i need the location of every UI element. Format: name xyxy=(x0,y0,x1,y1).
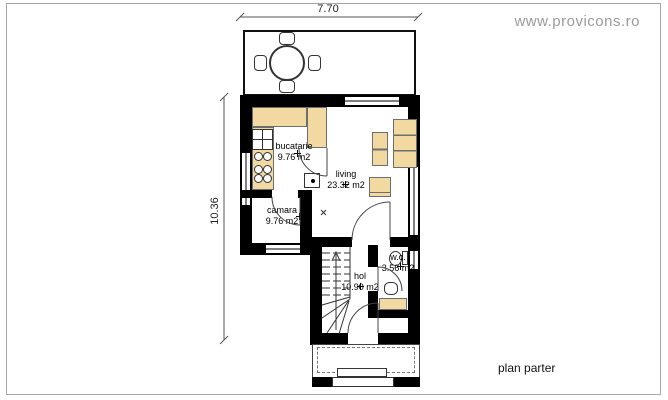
kitchen-counter-top xyxy=(252,107,307,127)
room-name-living: living xyxy=(312,169,380,180)
window-camara xyxy=(266,243,300,255)
wall-camara-bottom-left xyxy=(240,243,266,255)
center-mark-living xyxy=(342,181,349,188)
floor-plan-page: www.provicons.ro plan parter 7.70 10.36 xyxy=(0,0,668,400)
chair-left xyxy=(254,55,267,71)
room-name-camara: camara xyxy=(248,205,316,216)
porch-base-left xyxy=(312,377,332,387)
wall-wc-right-lower xyxy=(408,269,420,345)
center-mark-hol xyxy=(357,283,364,290)
watermark-text: www.provicons.ro xyxy=(514,13,640,30)
round-table xyxy=(269,45,305,81)
center-mark-camara xyxy=(296,213,303,220)
window-living-top xyxy=(345,95,399,107)
stove-burner-4 xyxy=(263,174,272,183)
wall-camara-top xyxy=(240,190,272,198)
wall-left-upper xyxy=(240,107,252,153)
stove-burner-3 xyxy=(254,174,263,183)
wc-counter xyxy=(379,298,407,310)
plan-title: plan parter xyxy=(498,361,555,375)
chair-top xyxy=(279,32,295,45)
dimension-height-label: 10.36 xyxy=(209,188,221,234)
armchair xyxy=(372,132,388,166)
wall-top-right xyxy=(399,95,420,107)
porch-base-right xyxy=(394,377,420,387)
room-name-wc: w.c. xyxy=(374,252,422,263)
dimension-width-label: 7.70 xyxy=(300,3,356,15)
porch-step-upper xyxy=(337,368,387,377)
chair-right xyxy=(308,55,321,71)
chair-bottom xyxy=(279,80,295,93)
room-area-camara: 9.76 m2 xyxy=(248,216,316,227)
window-living-right xyxy=(408,167,420,235)
wall-hol-left xyxy=(310,237,322,345)
porch-step-lower xyxy=(332,377,394,387)
stove-burner-2 xyxy=(263,165,272,174)
room-label-camara: camara 9.76 m2 xyxy=(248,205,316,227)
center-mark-bucatarie xyxy=(294,150,301,157)
stove-burner-1 xyxy=(254,165,263,174)
wall-top-left xyxy=(240,95,345,107)
sofa xyxy=(393,119,417,168)
center-mark-wc xyxy=(397,263,404,270)
